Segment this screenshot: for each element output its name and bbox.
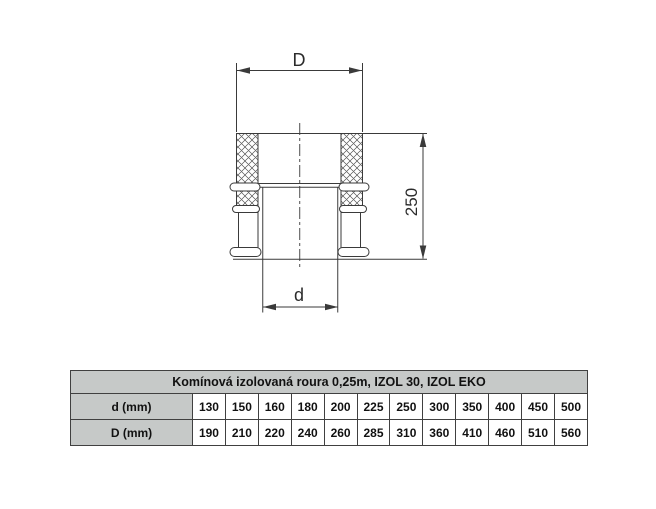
table-row-D: D (mm) 190 210 220 240 260 285 310 360 4…	[71, 420, 588, 446]
D-value: 240	[291, 420, 324, 446]
d-value: 450	[522, 394, 555, 420]
d-value: 160	[258, 394, 291, 420]
d-value: 400	[489, 394, 522, 420]
D-value: 220	[258, 420, 291, 446]
D-value: 310	[390, 420, 423, 446]
insulated-pipe-diagram: D d 250	[0, 0, 656, 365]
d-value: 200	[324, 394, 357, 420]
D-value: 410	[456, 420, 489, 446]
D-value: 210	[225, 420, 258, 446]
d-value: 225	[357, 394, 390, 420]
d-value: 350	[456, 394, 489, 420]
d-value: 180	[291, 394, 324, 420]
row-label-d: d (mm)	[71, 394, 193, 420]
row-label-D: D (mm)	[71, 420, 193, 446]
table-title: Komínová izolovaná roura 0,25m, IZOL 30,…	[71, 371, 588, 394]
dimension-D	[237, 63, 363, 132]
D-value: 285	[357, 420, 390, 446]
d-value: 500	[554, 394, 587, 420]
dimension-height-label: 250	[402, 188, 421, 216]
table-row-d: d (mm) 130 150 160 180 200 225 250 300 3…	[71, 394, 588, 420]
D-value: 460	[489, 420, 522, 446]
D-value: 510	[522, 420, 555, 446]
d-value: 300	[423, 394, 456, 420]
dimension-D-label: D	[293, 50, 306, 70]
table-title-row: Komínová izolovaná roura 0,25m, IZOL 30,…	[71, 371, 588, 394]
D-value: 560	[554, 420, 587, 446]
D-value: 190	[193, 420, 226, 446]
D-value: 360	[423, 420, 456, 446]
D-value: 260	[324, 420, 357, 446]
d-value: 130	[193, 394, 226, 420]
page: { "drawing": { "dim_outer_label": "D", "…	[0, 0, 656, 509]
dimension-d-label: d	[294, 285, 304, 305]
d-value: 150	[225, 394, 258, 420]
dimensions-table: Komínová izolovaná roura 0,25m, IZOL 30,…	[70, 370, 588, 446]
d-value: 250	[390, 394, 423, 420]
technical-drawing: D d 250	[0, 0, 656, 365]
